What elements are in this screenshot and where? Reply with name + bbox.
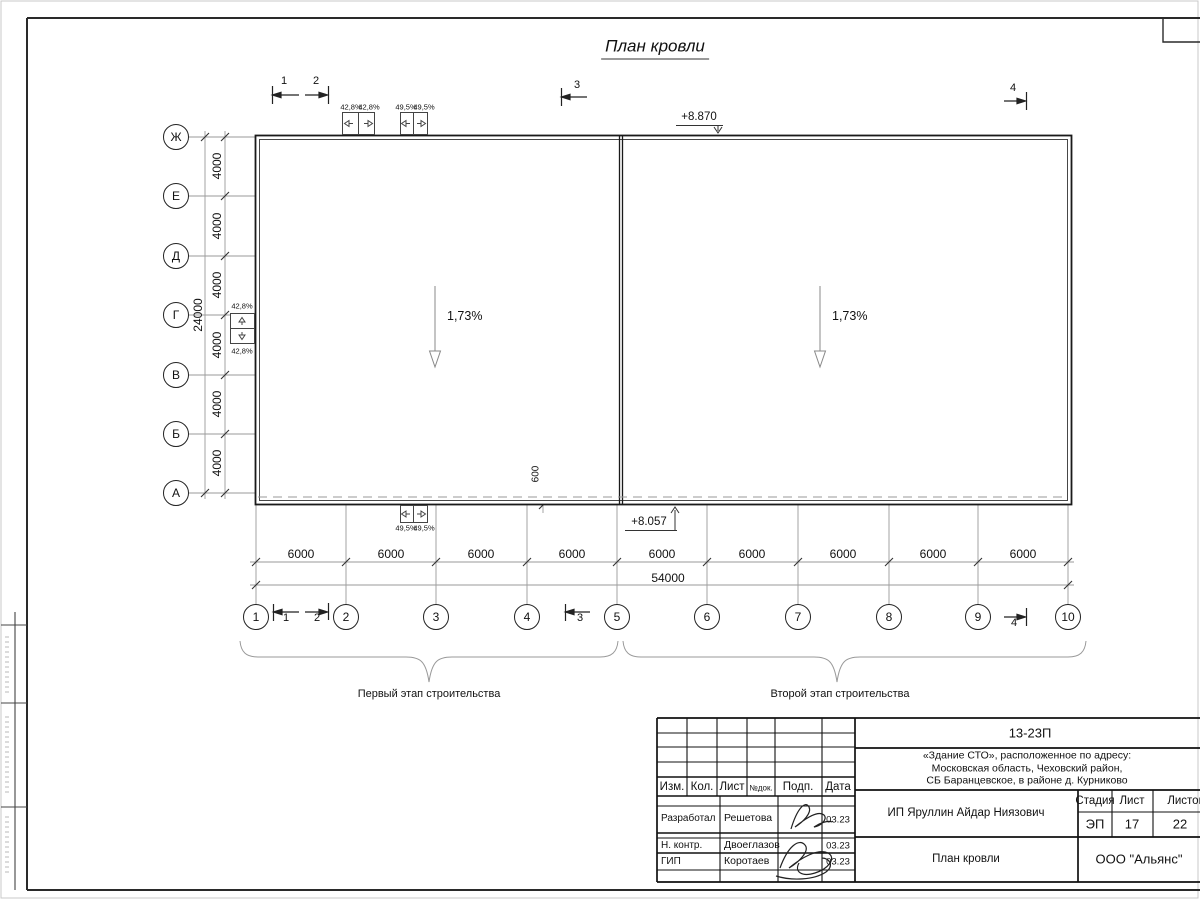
- stamp-project-line-3: СБ Баранцевское, в районе д. Курниково: [923, 774, 1131, 787]
- dim-row-5: 4000: [210, 391, 224, 418]
- stamp-sheets-value: 22: [1173, 817, 1187, 832]
- stamp-stage-label: Стадия: [1075, 795, 1114, 807]
- elevation-leader-top: [676, 126, 723, 134]
- dim-bay-5: 6000: [649, 547, 676, 561]
- stamp-client: ИП Яруллин Айдар Ниязович: [888, 807, 1045, 819]
- dim-row-3: 4000: [210, 272, 224, 299]
- axis-bubble-row-b: Б: [163, 421, 189, 447]
- stamp-organization: ООО "Альянс": [1096, 852, 1183, 867]
- dim-row-2: 4000: [210, 213, 224, 240]
- axis-bubble-col-5: 5: [604, 604, 630, 630]
- left-margin-strip: [1, 612, 27, 890]
- axis-bubble-col-7: 7: [785, 604, 811, 630]
- section-label-2-bottom: 2: [314, 612, 320, 624]
- slope-label-left: 1,73%: [447, 309, 482, 323]
- stamp-name-dvoeglazov: Двоеглазов: [724, 839, 780, 851]
- dim-total-length: 54000: [651, 571, 684, 585]
- axis-bubble-row-v: В: [163, 362, 189, 388]
- dim-bay-4: 6000: [559, 547, 586, 561]
- sheet-title: План кровли: [601, 37, 709, 60]
- dim-row-1: 4000: [210, 153, 224, 180]
- stamp-role-gip: ГИП: [661, 856, 681, 867]
- stamp-role-razrabotal: Разработал: [661, 813, 715, 824]
- dim-bay-2: 6000: [378, 547, 405, 561]
- stamp-sheet-value: 17: [1125, 817, 1139, 832]
- stamp-col-kol: Кол.: [691, 781, 714, 793]
- scupper-top-a-label-2: 42,8%: [358, 103, 379, 112]
- stamp-date-gip: 03.23: [826, 857, 850, 868]
- scupper-boxes-left: [231, 314, 255, 344]
- dim-overhang-600: 600: [531, 466, 542, 483]
- section-label-2-top: 2: [313, 75, 319, 87]
- dim-bay-9: 6000: [1010, 547, 1037, 561]
- roof-outline-outer: [256, 136, 1072, 505]
- dim-bay-6: 6000: [739, 547, 766, 561]
- axis-bubble-row-e: Е: [163, 183, 189, 209]
- stamp-sheets-label: Листов: [1167, 795, 1200, 807]
- elevation-top: +8.870: [681, 111, 717, 123]
- stamp-project-address: «Здание СТО», расположенное по адресу: М…: [923, 749, 1131, 787]
- scupper-top-b-label-2: 49,5%: [413, 103, 434, 112]
- stamp-project-line-2: Московская область, Чеховский район,: [923, 762, 1131, 775]
- scupper-boxes-bottom: [401, 506, 428, 523]
- section-label-4-bottom: 4: [1011, 617, 1017, 629]
- dim-bay-8: 6000: [920, 547, 947, 561]
- scupper-boxes-top-a: [343, 113, 375, 135]
- stage-braces: [240, 641, 1086, 682]
- axis-bubble-col-2: 2: [333, 604, 359, 630]
- scupper-left-label-top: 42,8%: [231, 302, 252, 311]
- stamp-sheet-label: Лист: [1120, 795, 1145, 807]
- axis-bubble-col-6: 6: [694, 604, 720, 630]
- scupper-left-label-bottom: 42,8%: [231, 347, 252, 356]
- axis-bubble-col-10: 10: [1055, 604, 1081, 630]
- stamp-project-line-1: «Здание СТО», расположенное по адресу:: [923, 749, 1131, 762]
- elevation-bottom: +8.057: [631, 516, 667, 528]
- axis-bubble-col-3: 3: [423, 604, 449, 630]
- stamp-date-nkontr: 03.23: [826, 841, 850, 852]
- stage-one-label: Первый этап строительства: [358, 688, 501, 700]
- stamp-name-korotaev: Коротаев: [724, 855, 769, 867]
- section-label-1-bottom: 1: [283, 612, 289, 624]
- dim-total-depth: 24000: [191, 298, 205, 331]
- stamp-stage-value: ЭП: [1086, 817, 1105, 832]
- stamp-doc-number: 13-23П: [1009, 726, 1052, 741]
- axis-bubble-row-d: Д: [163, 243, 189, 269]
- axis-bubble-col-9: 9: [965, 604, 991, 630]
- section-label-3-top: 3: [574, 79, 580, 91]
- slope-label-right: 1,73%: [832, 309, 867, 323]
- stamp-col-izm: Изм.: [660, 781, 685, 793]
- scupper-boxes-top-b: [401, 113, 428, 135]
- section-label-1-top: 1: [281, 75, 287, 87]
- corner-box: [1163, 18, 1200, 42]
- axis-bubble-col-4: 4: [514, 604, 540, 630]
- section-label-3-bottom: 3: [577, 612, 583, 624]
- dim-bay-7: 6000: [830, 547, 857, 561]
- dim-bay-1: 6000: [288, 547, 315, 561]
- stamp-date-razrabotal: 03.23: [826, 815, 850, 826]
- axis-bubble-row-g: Г: [163, 302, 189, 328]
- stamp-col-data: Дата: [825, 781, 850, 793]
- scupper-bottom-label-2: 49,5%: [413, 524, 434, 533]
- axis-bubble-row-a: А: [163, 480, 189, 506]
- blueprint-sheet: План кровли Ж Е Д Г В Б А 1 2 3 4 5 6 7 …: [0, 0, 1200, 900]
- stamp-name-reshetova: Решетова: [724, 812, 772, 824]
- axis-bubble-row-zh: Ж: [163, 124, 189, 150]
- signature-dvoeglazov-korotaev: [776, 843, 832, 880]
- stamp-col-dok: №док.: [749, 784, 772, 793]
- stamp-col-list: Лист: [720, 781, 745, 793]
- dim-row-6: 4000: [210, 450, 224, 477]
- axis-bubble-col-1: 1: [243, 604, 269, 630]
- stamp-col-podp: Подп.: [783, 781, 814, 793]
- section-label-4-top: 4: [1010, 82, 1016, 94]
- dim-bay-3: 6000: [468, 547, 495, 561]
- stamp-sheet-name: План кровли: [932, 853, 1000, 865]
- stamp-role-nkontr: Н. контр.: [661, 840, 702, 851]
- dim-row-4: 4000: [210, 332, 224, 359]
- stage-two-label: Второй этап строительства: [771, 688, 910, 700]
- axis-bubble-col-8: 8: [876, 604, 902, 630]
